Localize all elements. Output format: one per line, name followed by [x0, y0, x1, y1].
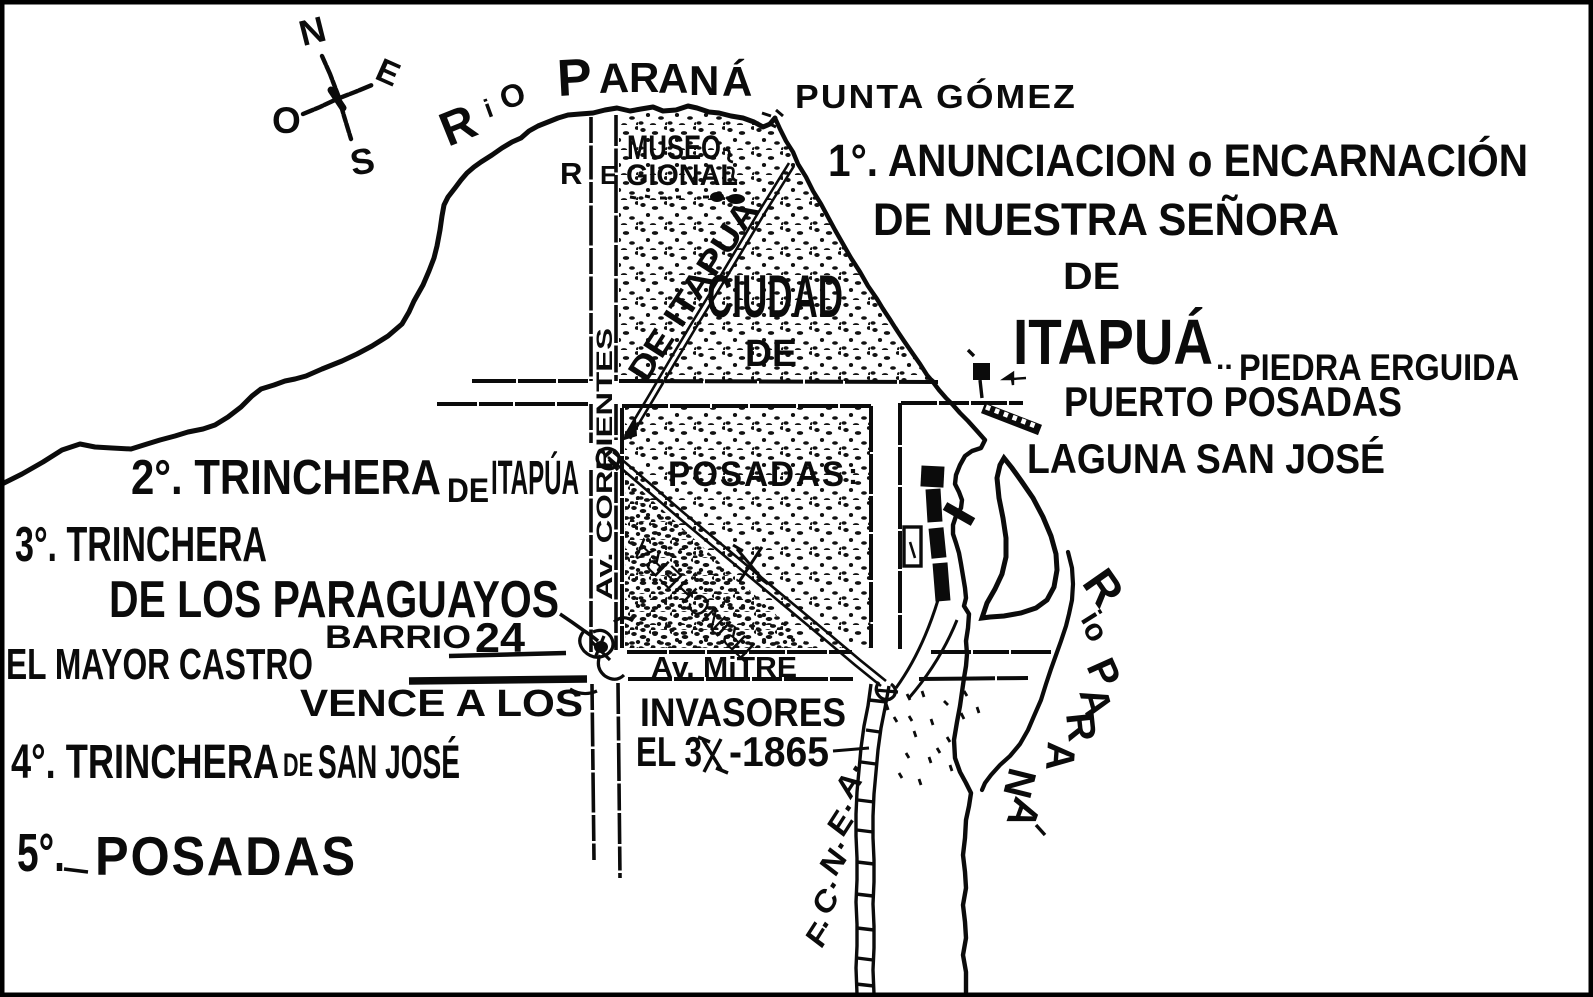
svg-text:Av. MiTRE: Av. MiTRE — [651, 652, 797, 684]
svg-text:O: O — [272, 100, 301, 141]
svg-text:5°.: 5°. — [17, 823, 65, 883]
svg-text:PUNTA GÓMEZ: PUNTA GÓMEZ — [795, 78, 1077, 115]
svg-text:DE NUESTRA SEÑORA: DE NUESTRA SEÑORA — [873, 194, 1339, 245]
svg-text:3°. TRINCHERA: 3°. TRINCHERA — [15, 518, 267, 572]
svg-text:R: R — [560, 156, 582, 191]
svg-text:PUERTO POSADAS: PUERTO POSADAS — [1064, 378, 1402, 425]
svg-text:DE: DE — [1063, 256, 1120, 298]
svg-text:4°. TRINCHERA: 4°. TRINCHERA — [11, 736, 279, 789]
svg-text::: : — [848, 458, 858, 491]
svg-text:DE: DE — [745, 333, 797, 375]
svg-text:BARRIO: BARRIO — [325, 619, 471, 655]
svg-text:EL MAYOR CASTRO: EL MAYOR CASTRO — [6, 640, 313, 689]
svg-text:..: .. — [1216, 343, 1233, 376]
svg-text:A: A — [598, 54, 630, 102]
svg-text:LAGUNA SAN JOSÉ: LAGUNA SAN JOSÉ — [1027, 435, 1385, 482]
svg-text:DE: DE — [283, 747, 313, 783]
svg-text:Av. CORRIENTES: Av. CORRIENTES — [592, 328, 617, 600]
svg-text:-1865: -1865 — [729, 728, 829, 775]
svg-text:DE: DE — [447, 472, 489, 510]
svg-text:R: R — [1057, 710, 1104, 743]
svg-text:VENCE A LOS: VENCE A LOS — [300, 683, 583, 725]
svg-text:EL 3: EL 3 — [636, 728, 702, 775]
svg-text:24: 24 — [475, 614, 526, 661]
svg-text:ITAPUÁ: ITAPUÁ — [1013, 306, 1213, 378]
svg-text:R: R — [629, 54, 659, 101]
svg-text:ITAPÚA: ITAPÚA — [491, 450, 579, 505]
svg-text:P: P — [556, 48, 594, 108]
svg-text:A: A — [1037, 740, 1083, 772]
svg-text:POSADAS: POSADAS — [668, 455, 846, 494]
svg-text:Á: Á — [722, 58, 752, 105]
svg-text:A: A — [658, 55, 688, 102]
svg-text:N: N — [689, 57, 719, 104]
svg-text:SAN JOSÉ: SAN JOSÉ — [318, 735, 460, 788]
svg-text:1°. ANUNCIACION o ENCARNACIÓN: 1°. ANUNCIACION o ENCARNACIÓN — [828, 135, 1528, 186]
svg-text:POSADAS: POSADAS — [95, 825, 357, 887]
svg-text:E: E — [600, 160, 617, 190]
svg-text:GIONAL: GIONAL — [626, 159, 738, 192]
svg-text:2°. TRINCHERA: 2°. TRINCHERA — [131, 451, 441, 505]
